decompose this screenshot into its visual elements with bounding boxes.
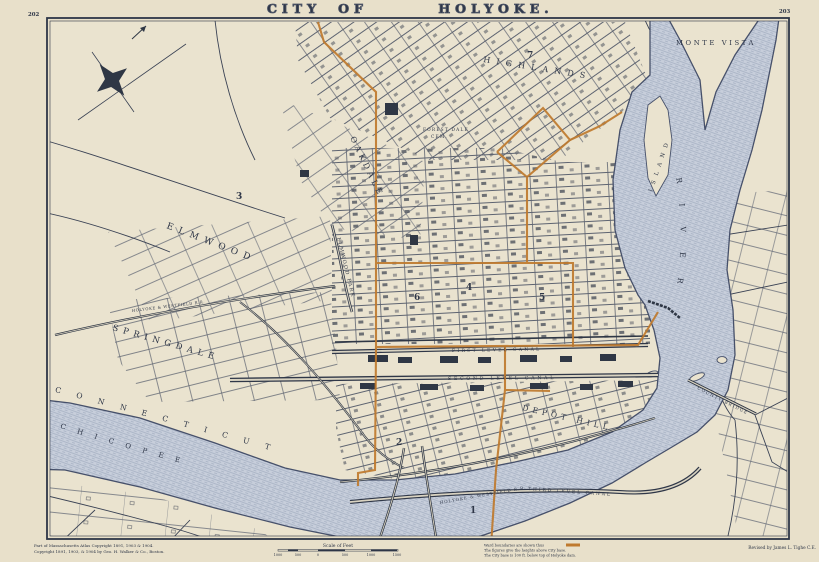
scale-tick: 0: [317, 553, 319, 557]
ward-6: 6: [414, 293, 420, 303]
page-number-left: 202: [28, 12, 40, 18]
ward-1: 1: [470, 506, 476, 516]
ward-2: 2: [396, 438, 402, 448]
title-of: OF: [338, 1, 368, 16]
ward-5: 5: [539, 293, 545, 303]
ward-3: 3: [236, 192, 242, 202]
ward-4: 4: [466, 283, 472, 293]
legend-line2: The figures give the heights above City …: [484, 549, 566, 553]
revised-credit: Revised by James L. Tighe C.E.: [748, 546, 816, 551]
copyright-line2: Copyright 1891, 1903, & 1904 by Geo. H. …: [34, 549, 165, 554]
holyoke-atlas-page: MONTE VISTA HIGHLANDS OAKDALE ELMWOOD EL…: [0, 0, 819, 562]
legend-ward-swatch: [566, 544, 580, 547]
ward-7: 7: [527, 51, 533, 61]
legend-line1: Ward boundaries are shown thus: [484, 544, 544, 548]
label-second-canal: SECOND LEVEL CANAL: [448, 375, 556, 382]
title-city: CITY: [267, 1, 321, 16]
district-downtown-grid: [332, 148, 650, 344]
label-forest-dale-1: FOREST DALE: [423, 128, 469, 133]
title-holyoke: HOLYOKE.: [438, 1, 553, 16]
scale-tick: 500: [295, 553, 301, 557]
park-block: [385, 103, 398, 115]
scale-tick: 1000: [274, 553, 283, 557]
label-monte-vista: MONTE VISTA: [676, 39, 756, 47]
scale-tick: 1000: [367, 553, 376, 557]
legend-line3: The City base is 100 ft. below top of Ho…: [484, 554, 576, 558]
scale-tick: 1500: [393, 553, 402, 557]
scale-tick: 500: [342, 553, 348, 557]
label-forest-dale-2: CEM.: [431, 135, 448, 140]
copyright-line1: Part of Massachusetts Atlas Copyright 18…: [34, 543, 154, 548]
page-number-right: 203: [779, 9, 791, 15]
holyoke-map: MONTE VISTA HIGHLANDS OAKDALE ELMWOOD EL…: [0, 0, 819, 562]
copyright-block: Part of Massachusetts Atlas Copyright 18…: [34, 543, 165, 554]
scale-label: Scale of Feet: [323, 543, 353, 549]
